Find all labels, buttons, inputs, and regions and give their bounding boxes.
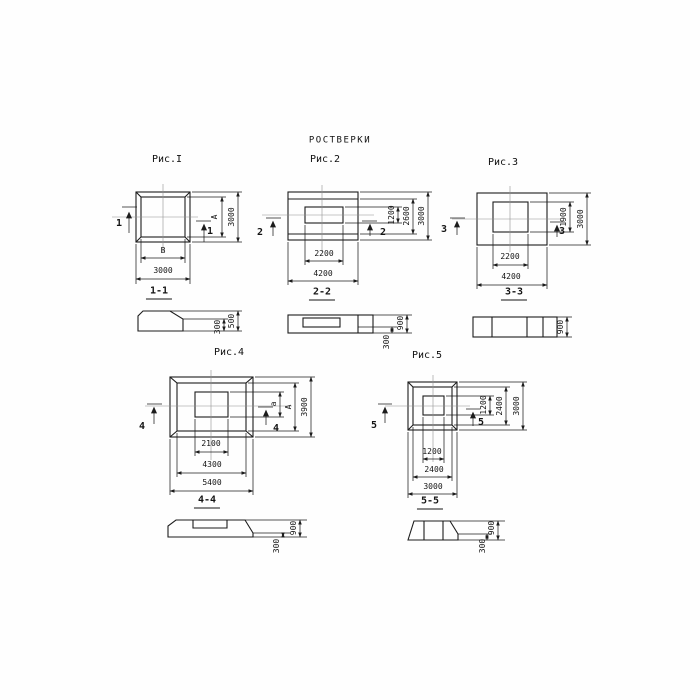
fig1-dim-bottom-outer: 3000 (153, 267, 172, 275)
fig5-dim-right-inner: 1200 (480, 395, 488, 414)
drawing-linework (0, 0, 700, 700)
fig3-cut-label-left: 3 (441, 225, 447, 235)
fig4-cut-label-right: 4 (273, 424, 279, 434)
fig5-section-height: 900 (488, 521, 496, 535)
fig2-dim-bottom-inner: 2200 (314, 250, 333, 258)
fig5-label: Рис.5 (412, 351, 442, 361)
fig1-cut-label-right: 1 (207, 227, 213, 237)
drawing-canvas: РОСТВЕРКИ Рис.I 1 1 А 3000 В 3000 1-1 50… (0, 0, 700, 700)
sheet-title: РОСТВЕРКИ (309, 137, 371, 146)
fig3-section-label: 3-3 (501, 288, 527, 301)
fig2-plan-drawing (262, 185, 432, 285)
fig1-plan-drawing (112, 184, 242, 284)
fig4-dim-bottom-middle: 4300 (202, 461, 221, 469)
fig2-dim-right-middle: 2600 (403, 206, 411, 225)
fig2-cut-label-left: 2 (257, 228, 263, 238)
fig5-dim-bottom-middle: 2400 (424, 466, 443, 474)
fig4-section-height: 900 (290, 521, 298, 535)
fig3-dim-bottom-outer: 4200 (501, 273, 520, 281)
fig2-section-drawing (288, 315, 412, 333)
fig3-cut-label-right: 3 (559, 227, 565, 237)
fig5-section-label: 5-5 (417, 497, 443, 510)
fig1-section-height: 500 (228, 314, 236, 328)
fig5-cut-label-left: 5 (371, 421, 377, 431)
fig1-section-label: 1-1 (146, 287, 172, 300)
fig1-dim-right-outer: 3000 (228, 207, 236, 226)
fig3-section-height: 900 (557, 320, 565, 334)
fig2-label: Рис.2 (310, 155, 340, 165)
fig4-plan-drawing (145, 370, 315, 495)
fig1-section-toe: 300 (214, 320, 222, 334)
fig4-dim-right-inner: а (270, 402, 278, 407)
fig1-dim-right-inner: А (211, 215, 219, 220)
fig1-cut-label-left: 1 (116, 219, 122, 229)
fig5-plan-drawing (378, 375, 527, 498)
fig4-cut-label-left: 4 (139, 422, 145, 432)
fig5-dim-right-middle: 2400 (496, 396, 504, 415)
fig5-cut-label-right: 5 (478, 418, 484, 428)
fig1-label: Рис.I (152, 155, 182, 165)
fig5-dim-bottom-outer: 3000 (423, 483, 442, 491)
fig2-section-height: 900 (397, 316, 405, 330)
fig2-cut-label-right: 2 (380, 228, 386, 238)
fig4-dim-bottom-outer: 5400 (202, 479, 221, 487)
fig4-section-toe: 300 (273, 539, 281, 553)
fig4-dim-bottom-inner: 2100 (201, 440, 220, 448)
fig5-dim-bottom-inner: 1200 (422, 448, 441, 456)
fig2-section-label: 2-2 (309, 288, 335, 301)
fig4-dim-right-middle: А (285, 405, 293, 410)
fig3-label: Рис.3 (488, 158, 518, 168)
fig2-dim-bottom-outer: 4200 (313, 270, 332, 278)
fig2-dim-right-inner: 1200 (388, 205, 396, 224)
fig4-dim-right-outer: 3900 (301, 397, 309, 416)
fig1-dim-bottom-inner: В (161, 247, 166, 255)
fig4-label: Рис.4 (214, 348, 244, 358)
fig2-section-toe: 300 (383, 335, 391, 349)
fig5-dim-right-outer: 3000 (513, 396, 521, 415)
fig4-section-label: 4-4 (194, 496, 220, 509)
fig3-dim-right-inner: 1900 (560, 207, 568, 226)
fig3-dim-right-outer: 3000 (577, 209, 585, 228)
fig5-section-toe: 300 (479, 539, 487, 553)
fig4-section-drawing (168, 520, 307, 537)
fig3-dim-bottom-inner: 2200 (500, 253, 519, 261)
fig2-dim-right-outer: 3000 (418, 206, 426, 225)
